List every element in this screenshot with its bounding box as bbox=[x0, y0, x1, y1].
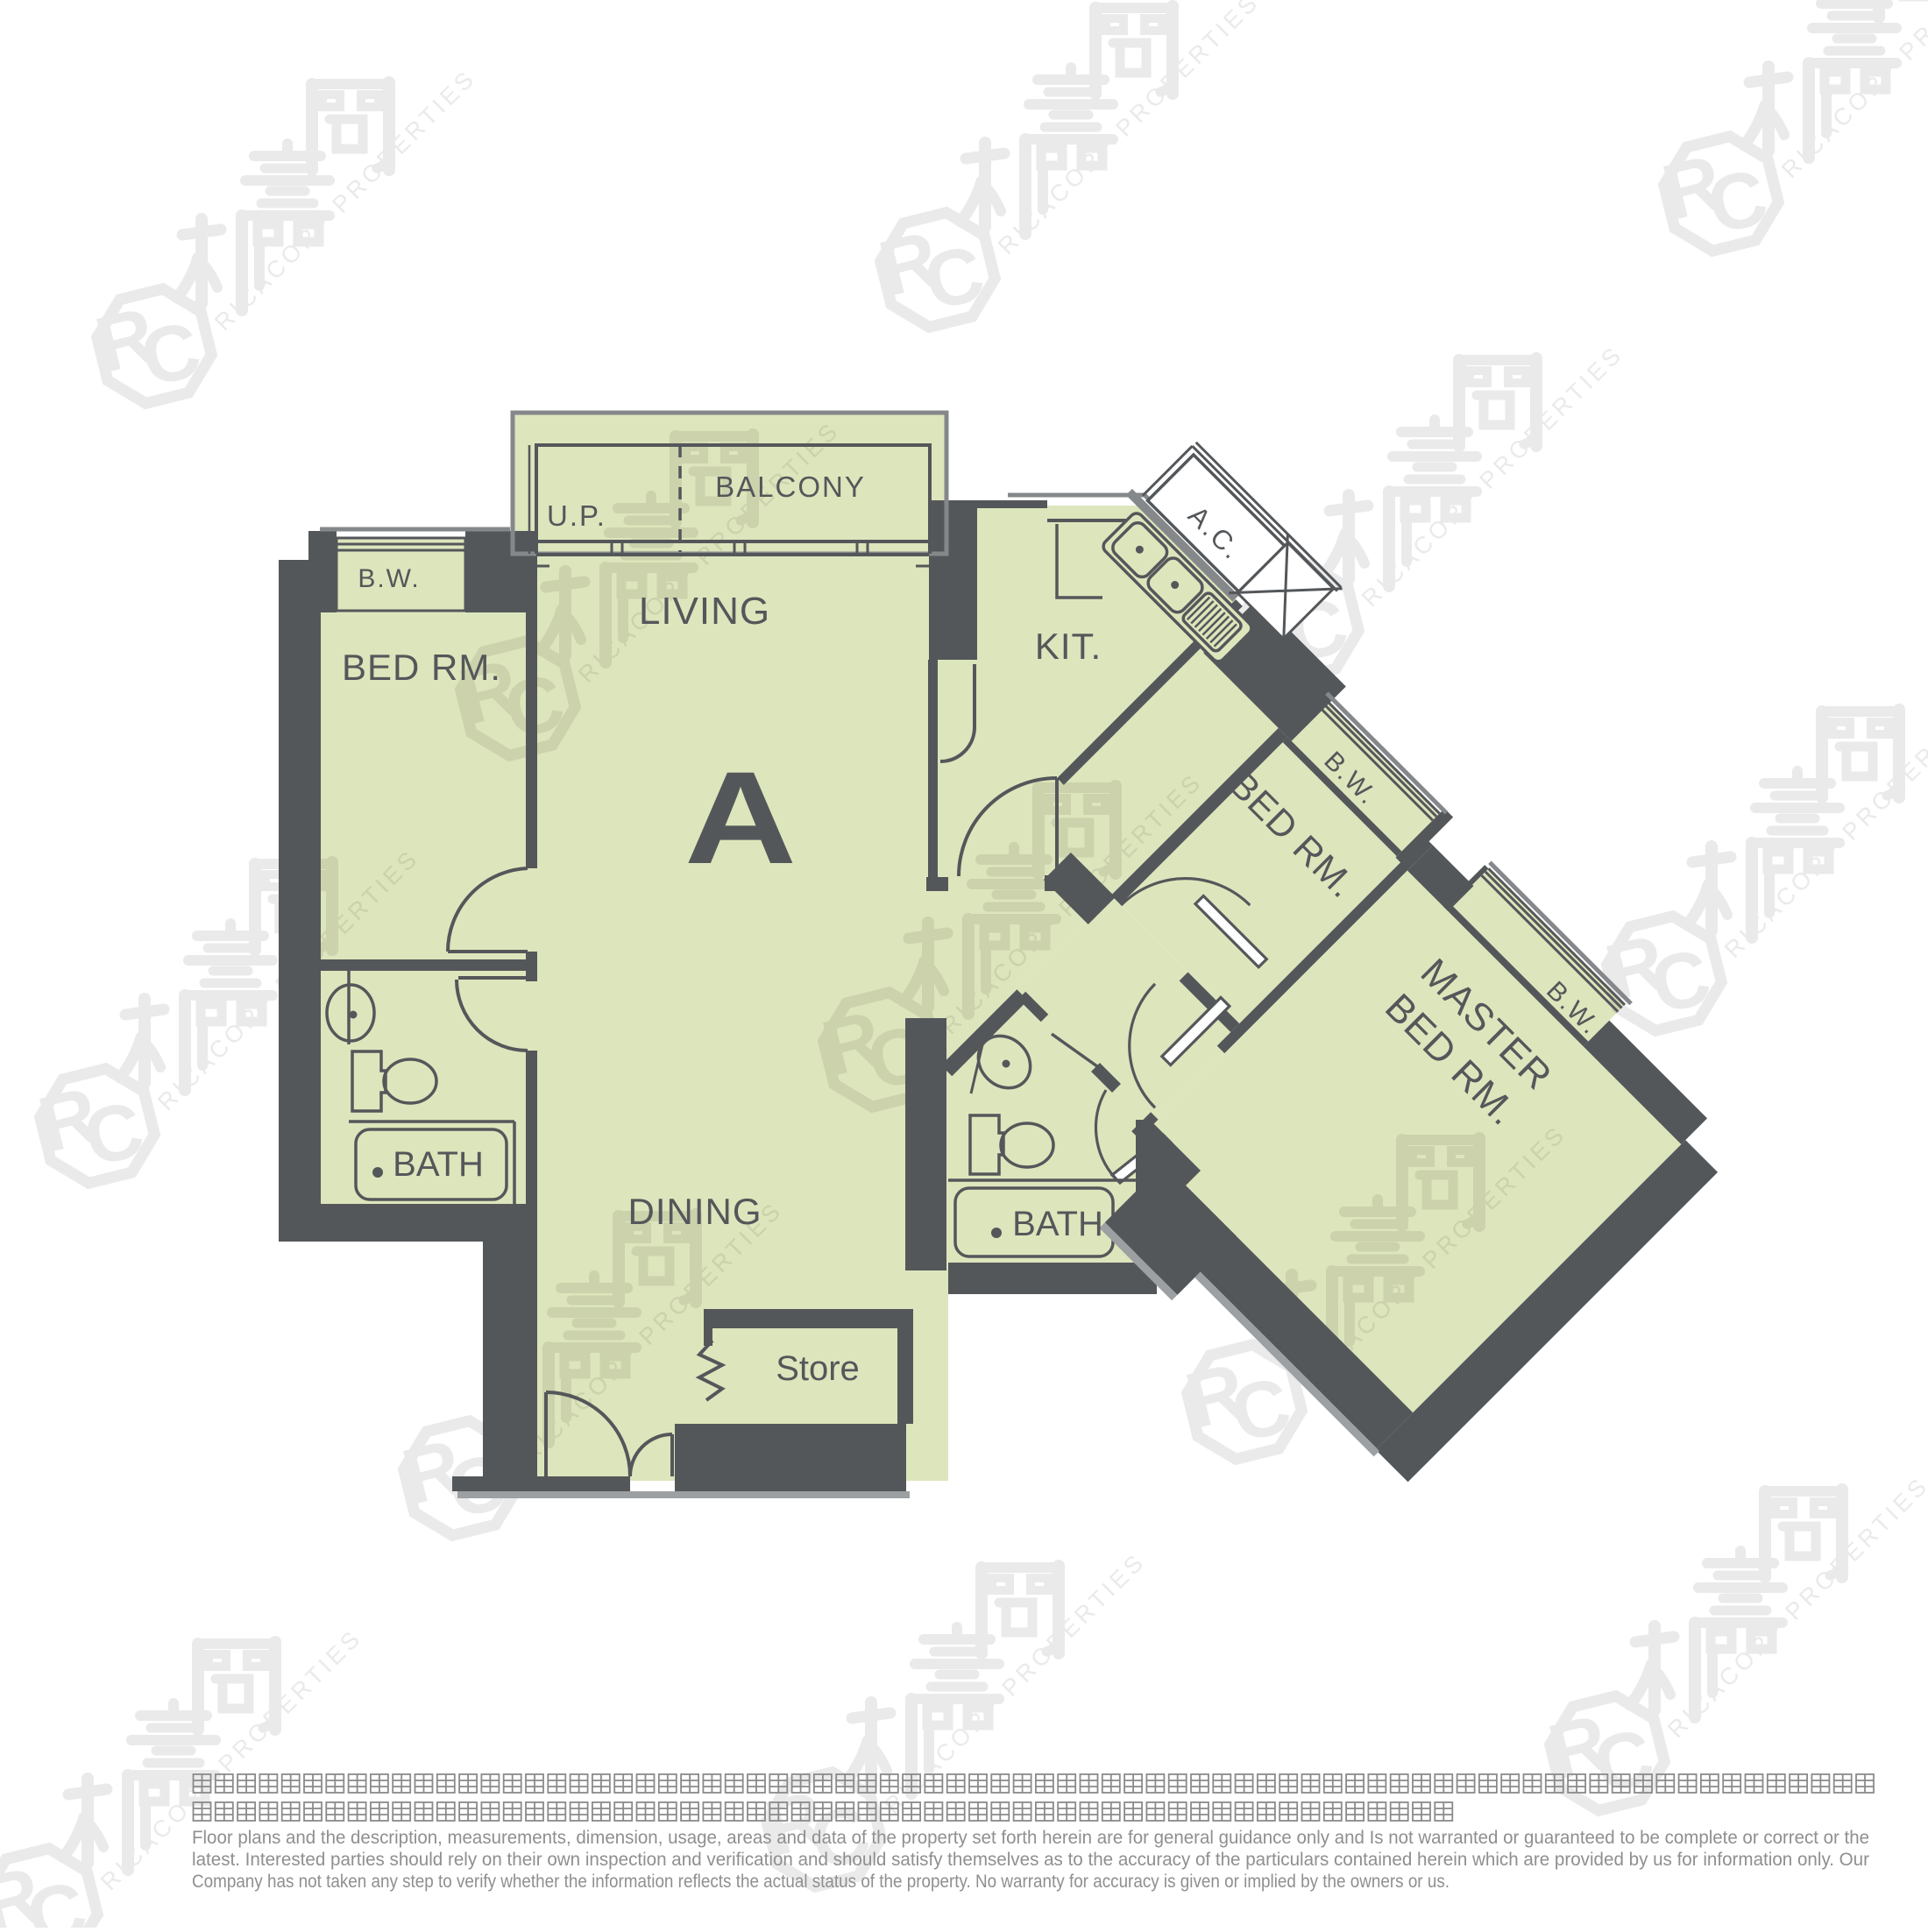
svg-text:BALCONY: BALCONY bbox=[715, 471, 866, 503]
svg-text:KIT.: KIT. bbox=[1035, 626, 1102, 667]
svg-text:B.W.: B.W. bbox=[358, 564, 420, 593]
svg-text:U.P.: U.P. bbox=[547, 499, 606, 532]
svg-text:Floor plans and the descriptio: Floor plans and the description, measure… bbox=[192, 1827, 1869, 1848]
svg-text:Company has not taken any step: Company has not taken any step to verify… bbox=[192, 1871, 1450, 1892]
svg-text:DINING: DINING bbox=[628, 1191, 762, 1232]
svg-text:Store: Store bbox=[776, 1349, 860, 1388]
svg-text:latest. Interested parties sho: latest. Interested parties should rely o… bbox=[192, 1849, 1869, 1870]
svg-text:BED RM.: BED RM. bbox=[342, 647, 501, 688]
svg-text:BATH: BATH bbox=[393, 1145, 484, 1184]
svg-text:A: A bbox=[684, 744, 797, 891]
svg-text:LIVING: LIVING bbox=[639, 590, 770, 633]
svg-text:BATH: BATH bbox=[1012, 1205, 1103, 1243]
